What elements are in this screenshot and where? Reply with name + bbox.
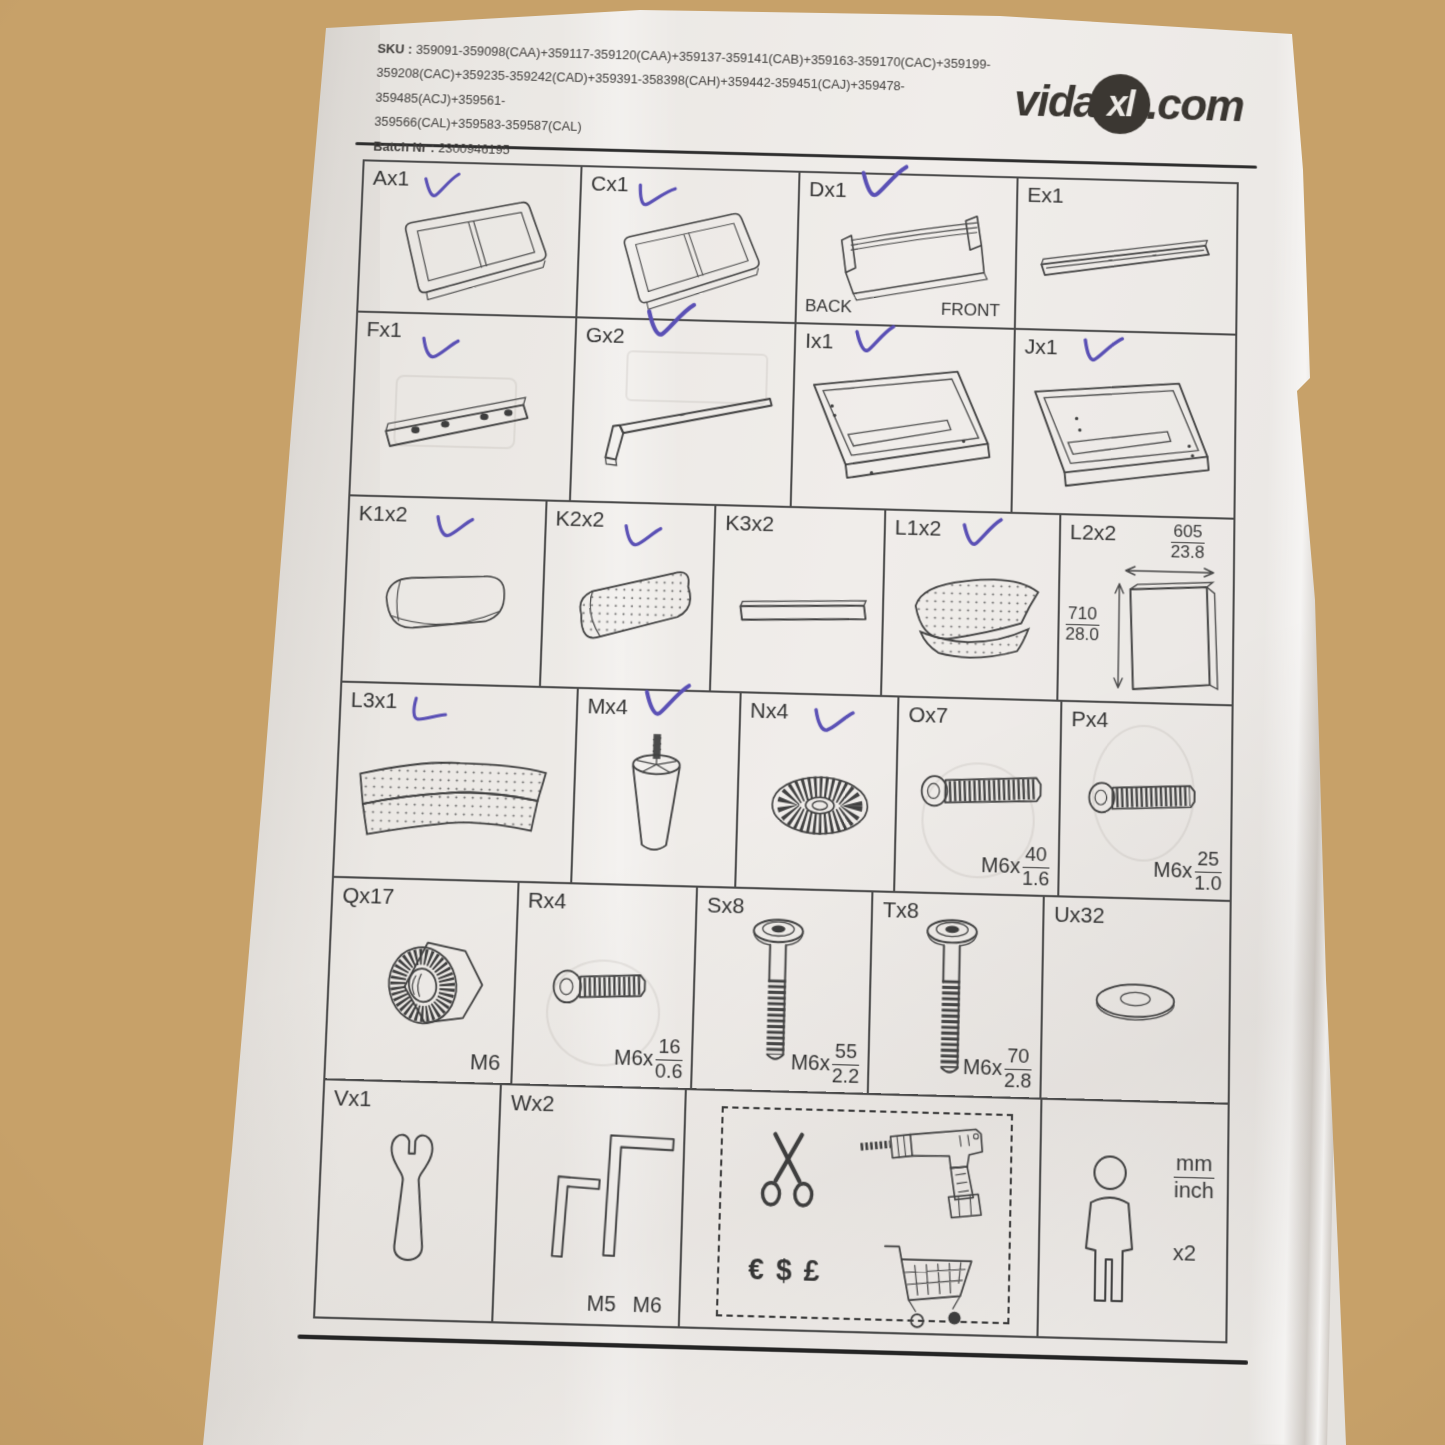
part-cell-l2: L2x2 60523.8 71028.0 xyxy=(1058,515,1233,704)
part-label: Cx1 xyxy=(591,172,629,197)
part-cell-j: Jx1 xyxy=(1013,330,1236,518)
tools-needed-cell: € $ £ xyxy=(680,1090,1043,1336)
pen-checkmark xyxy=(641,678,694,725)
seat-frame-illustration xyxy=(368,186,572,314)
allen-key-large-size: M6 xyxy=(632,1293,662,1319)
person-icon xyxy=(1064,1148,1162,1318)
part-label: Wx2 xyxy=(510,1091,555,1118)
scale-note-cell: mm inch x2 xyxy=(1039,1100,1228,1341)
part-cell-t: Tx8 M6x 702.8 xyxy=(869,892,1045,1097)
part-label: Sx8 xyxy=(707,893,745,919)
pen-checkmark xyxy=(858,160,911,206)
grid-row-5: Qx17 M6 Rx4 xyxy=(325,878,1229,1105)
bolt-size-spec: M6x 401.6 xyxy=(981,843,1050,891)
part-label: Qx17 xyxy=(342,883,395,910)
part-cell-k3: K3x2 xyxy=(711,506,886,695)
part-label: Fx1 xyxy=(366,318,402,343)
part-cell-w: Wx2 M5 M6 xyxy=(493,1085,687,1326)
show-through-mark xyxy=(625,350,768,405)
pen-checkmark xyxy=(810,701,858,740)
part-label: L3x1 xyxy=(350,688,398,714)
not-included-box: € $ £ xyxy=(716,1106,1013,1324)
foam-block-illustration xyxy=(545,545,712,676)
pen-checkmark xyxy=(852,322,897,360)
part-label: Tx8 xyxy=(882,898,919,924)
sku-block: SKU : 359091-359098(CAA)+359117-359120(C… xyxy=(373,37,1028,176)
side-panel-illustration xyxy=(1016,353,1228,515)
photo-scene: SKU : 359091-359098(CAA)+359117-359120(C… xyxy=(0,0,1445,1445)
logo-text-vida: vida xyxy=(1014,76,1097,128)
grid-row-3: K1x2 K2x2 xyxy=(342,496,1233,706)
part-label: Jx1 xyxy=(1024,335,1057,360)
part-cell-m: Mx4 xyxy=(572,689,741,887)
slat-illustration xyxy=(1020,213,1231,315)
pen-checkmark xyxy=(959,515,1007,553)
scissors-icon xyxy=(748,1117,828,1223)
person-multiplier: x2 xyxy=(1173,1241,1197,1268)
grid-row-6: Vx1 Wx2 M5 M6 xyxy=(315,1080,1227,1341)
round-pad-illustration xyxy=(751,756,887,854)
part-cell-o: Ox7 M6x 401.6 xyxy=(895,698,1062,896)
shopping-cart-icon xyxy=(870,1225,988,1346)
parts-grid: Ax1 Cx1 xyxy=(313,159,1239,1343)
strip-illustration xyxy=(718,560,882,664)
front-direction-label: FRONT xyxy=(941,300,1001,322)
width-dimension: 60523.8 xyxy=(1171,522,1205,562)
unit-fraction: mm inch xyxy=(1173,1151,1214,1205)
part-cell-l1: L1x2 xyxy=(882,511,1061,700)
logo-text-com: .com xyxy=(1146,80,1244,132)
wrench-illustration xyxy=(366,1118,452,1300)
currency-symbols: € $ £ xyxy=(748,1252,822,1288)
part-cell-a: Ax1 xyxy=(358,161,582,316)
grid-row-4: L3x1 Mx4 xyxy=(334,683,1232,902)
side-panel-illustration xyxy=(798,347,1006,502)
height-dimension: 71028.0 xyxy=(1065,604,1099,645)
part-label: K3x2 xyxy=(725,511,774,537)
part-label: Ax1 xyxy=(372,167,409,192)
version-text: - V1.0 - 2423 xyxy=(308,1420,1227,1445)
part-cell-d: Dx1 BACK FRONT xyxy=(797,173,1019,328)
vidaxl-logo: vida xl .com xyxy=(1014,71,1244,137)
allen-key-sizes: M5 M6 xyxy=(586,1292,662,1319)
pen-checkmark xyxy=(419,330,463,366)
part-cell-v: Vx1 xyxy=(315,1080,502,1321)
part-label: Gx2 xyxy=(585,324,625,349)
bolt-size-spec: M6x 160.6 xyxy=(613,1035,683,1084)
part-label: Ex1 xyxy=(1027,184,1064,209)
cushion-illustration xyxy=(357,542,525,669)
part-cell-n: Nx4 xyxy=(736,693,900,891)
washer-illustration xyxy=(1067,959,1203,1048)
bolt-size-spec: M6x 552.2 xyxy=(790,1040,860,1089)
part-cell-r: Rx4 M6x 160.6 xyxy=(512,883,698,1088)
pen-checkmark xyxy=(621,518,665,554)
pen-checkmark xyxy=(1078,329,1127,371)
document-content: SKU : 359091-359098(CAA)+359117-359120(C… xyxy=(308,29,1240,1445)
part-label: Dx1 xyxy=(809,178,847,203)
grid-row-2: Fx1 Gx2 xyxy=(350,313,1235,520)
part-label: Ox7 xyxy=(908,703,948,729)
allen-keys-illustration xyxy=(514,1111,687,1289)
grid-row-1: Ax1 Cx1 xyxy=(358,161,1237,335)
panel-illustration xyxy=(1123,577,1223,700)
part-label: Ix1 xyxy=(805,329,834,354)
document-header: SKU : 359091-359098(CAA)+359117-359120(C… xyxy=(364,29,1240,163)
pen-checkmark xyxy=(421,169,463,204)
part-label: Vx1 xyxy=(333,1086,372,1113)
part-cell-g: Gx2 xyxy=(571,318,797,506)
base-frame-illustration xyxy=(803,199,1011,307)
pen-checkmark xyxy=(432,509,478,545)
nut-size-spec: M6 xyxy=(469,1050,500,1077)
drill-icon xyxy=(852,1112,1011,1229)
part-cell-k2: K2x2 xyxy=(541,502,717,691)
part-cell-k1: K1x2 xyxy=(342,496,547,686)
bolt-size-spec: M6x 702.8 xyxy=(962,1044,1032,1093)
part-label: Rx4 xyxy=(527,888,566,914)
part-label: L1x2 xyxy=(895,516,942,542)
allen-key-small-size: M5 xyxy=(586,1292,616,1318)
foam-cushion-illustration xyxy=(888,548,1058,691)
nut-illustration xyxy=(347,917,497,1051)
pen-checkmark xyxy=(643,298,699,346)
part-label: K1x2 xyxy=(358,502,408,528)
bolt-size-spec: M6x 251.0 xyxy=(1153,848,1222,896)
show-through-mark xyxy=(1091,724,1196,863)
leg-illustration xyxy=(601,719,709,879)
back-direction-label: BACK xyxy=(805,296,852,317)
part-cell-q: Qx17 M6 xyxy=(325,878,519,1083)
foam-mat-illustration xyxy=(341,725,573,872)
part-label: K2x2 xyxy=(555,507,605,533)
part-label: Mx4 xyxy=(587,694,628,720)
part-cell-p: Px4 M6x 251.0 xyxy=(1059,702,1231,900)
part-cell-s: Sx8 M6x 552.2 xyxy=(692,888,873,1093)
show-through-mark xyxy=(393,375,517,450)
part-cell-e: Ex1 xyxy=(1016,178,1237,333)
part-cell-f: Fx1 xyxy=(350,313,577,501)
part-cell-i: Ix1 xyxy=(792,324,1016,512)
part-label: Px4 xyxy=(1071,707,1108,733)
logo-xl-circle: xl xyxy=(1090,73,1151,134)
part-cell-u: Ux32 xyxy=(1042,897,1230,1103)
part-label: Ux32 xyxy=(1054,903,1105,930)
part-cell-l3: L3x1 xyxy=(334,683,579,883)
part-label: L2x2 xyxy=(1070,521,1117,547)
part-label: Nx4 xyxy=(750,699,789,725)
scale-note: mm inch x2 xyxy=(1173,1151,1215,1268)
